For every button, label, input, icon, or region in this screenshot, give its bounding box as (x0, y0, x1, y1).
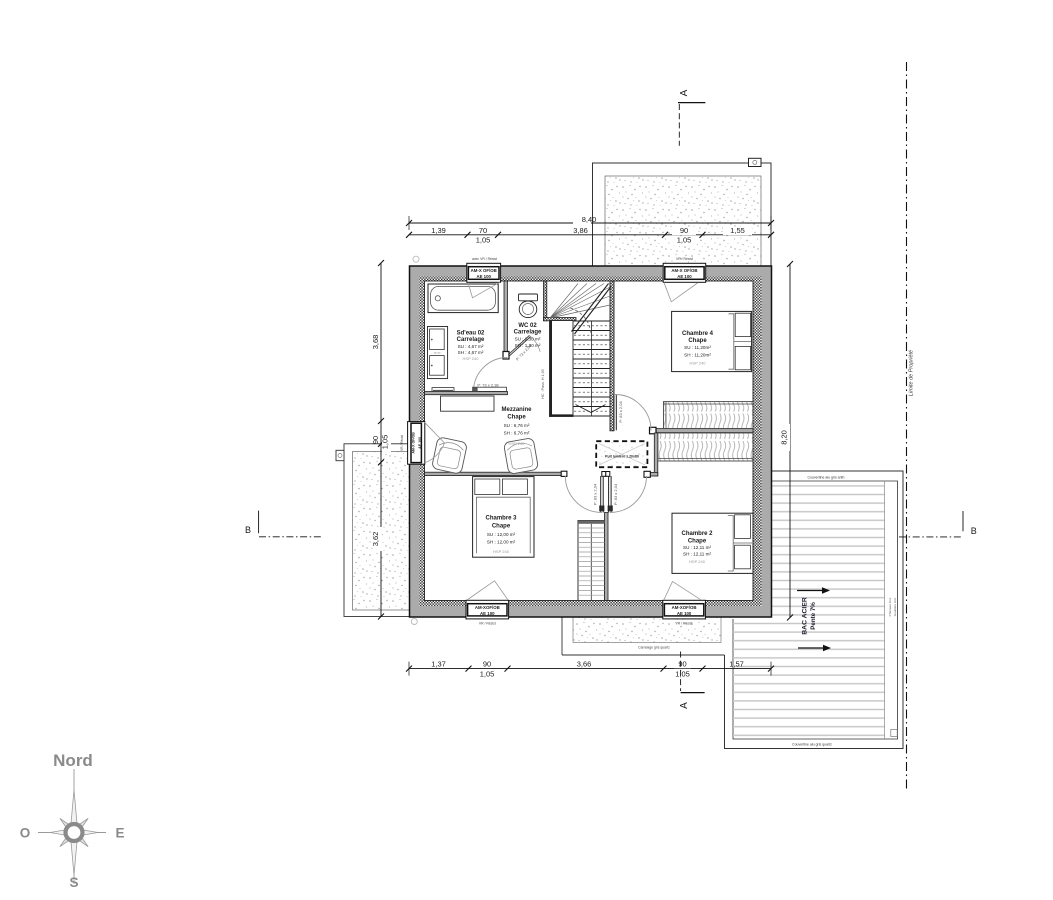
svg-text:avec VR / Résist: avec VR / Résist (472, 257, 497, 261)
svg-text:HSP 240: HSP 240 (689, 559, 706, 564)
svg-text:E: E (115, 826, 124, 841)
svg-text:SU : 12,00 m²: SU : 12,00 m² (487, 532, 516, 537)
svg-text:P: 83 x 2,04: P: 83 x 2,04 (618, 401, 623, 423)
svg-text:BAC ACIER: BAC ACIER (802, 597, 809, 635)
svg-text:HSP 240: HSP 240 (509, 441, 526, 446)
svg-text:SU : 11,20m²: SU : 11,20m² (684, 345, 711, 350)
svg-text:70: 70 (479, 226, 487, 235)
svg-text:B: B (971, 526, 977, 536)
svg-text:3,68: 3,68 (371, 335, 380, 350)
svg-text:AE 100: AE 100 (677, 611, 692, 616)
svg-text:Couvertine alu gris anth: Couvertine alu gris anth (808, 476, 845, 480)
svg-text:Carrelage: Carrelage (457, 337, 485, 343)
svg-text:SU : 6,76 m²: SU : 6,76 m² (504, 423, 530, 428)
svg-text:Chambre 3: Chambre 3 (485, 516, 517, 522)
svg-text:SH : 1,30 m²: SH : 1,30 m² (515, 343, 541, 348)
svg-text:Sd'eau 02: Sd'eau 02 (457, 331, 485, 337)
svg-text:SH : 12,00 m²: SH : 12,00 m² (487, 539, 516, 544)
svg-text:SU : 1,30 m²: SU : 1,30 m² (515, 336, 541, 341)
svg-text:Chape: Chape (507, 415, 526, 421)
svg-text:AM-X OF/OB: AM-X OF/OB (671, 268, 697, 273)
svg-text:AE 100: AE 100 (418, 437, 422, 449)
svg-text:SU : 4,67 m²: SU : 4,67 m² (458, 344, 484, 349)
svg-text:90: 90 (680, 226, 688, 235)
svg-text:P: 83 x 2,04: P: 83 x 2,04 (613, 483, 618, 505)
svg-text:O: O (20, 826, 31, 841)
svg-text:Couvertine alu gris quartz: Couvertine alu gris quartz (792, 743, 832, 747)
svg-text:Limite de Propriété: Limite de Propriété (909, 350, 915, 396)
svg-text:3,66: 3,66 (577, 659, 592, 668)
svg-text:AM-X OF/OB: AM-X OF/OB (471, 268, 497, 273)
svg-text:SH : 12,11 m²: SH : 12,11 m² (683, 551, 711, 556)
svg-text:1,55: 1,55 (730, 226, 745, 235)
svg-text:HSP 240: HSP 240 (493, 549, 510, 554)
svg-text:Mezzanine: Mezzanine (501, 407, 532, 413)
svg-text:1,37: 1,37 (431, 659, 446, 668)
svg-text:AM-X OF/OB: AM-X OF/OB (412, 432, 416, 454)
svg-text:1,05: 1,05 (380, 435, 389, 450)
svg-text:P: 83 x 2,04: P: 83 x 2,04 (593, 483, 598, 505)
svg-text:8,20: 8,20 (779, 430, 788, 445)
svg-text:A: A (679, 702, 690, 709)
svg-text:B: B (245, 525, 251, 535)
svg-text:3,62: 3,62 (371, 532, 380, 547)
svg-text:VR / Résist: VR / Résist (479, 622, 496, 626)
svg-text:VR / Résist: VR / Résist (676, 622, 693, 626)
svg-text:1,57: 1,57 (729, 659, 744, 668)
svg-text:HSP 240: HSP 240 (690, 361, 707, 366)
svg-text:AM-XOF/OB: AM-XOF/OB (475, 605, 500, 610)
svg-text:3,86: 3,86 (573, 226, 588, 235)
svg-text:VR / Résist: VR / Résist (676, 257, 693, 261)
svg-text:WC 02: WC 02 (518, 323, 537, 329)
svg-text:SH : 11,20m²: SH : 11,20m² (684, 352, 711, 357)
svg-text:Chape: Chape (688, 538, 707, 544)
svg-text:1,05: 1,05 (476, 236, 491, 245)
svg-text:HSP 240: HSP 240 (463, 356, 480, 361)
svg-text:AM-XOF/OB: AM-XOF/OB (672, 605, 697, 610)
svg-text:VR / Résist: VR / Résist (400, 435, 404, 451)
svg-text:Chambre 4: Chambre 4 (682, 331, 714, 337)
svg-text:AE 100: AE 100 (677, 274, 692, 279)
svg-text:SU : 12,11 m²: SU : 12,11 m² (683, 545, 711, 550)
svg-text:SH : 4,67 m²: SH : 4,67 m² (458, 350, 484, 355)
svg-text:1,05: 1,05 (480, 669, 495, 678)
svg-text:HC : Pass. H 1,90: HC : Pass. H 1,90 (541, 369, 545, 399)
svg-text:90: 90 (678, 659, 686, 668)
svg-text:Chape: Chape (688, 338, 707, 344)
svg-text:90: 90 (371, 436, 380, 444)
svg-text:Carrelage: Carrelage (514, 329, 542, 335)
svg-text:Nord: Nord (53, 751, 93, 770)
svg-text:Puit lumière 1.20x80: Puit lumière 1.20x80 (605, 454, 639, 458)
svg-text:A: A (679, 89, 690, 96)
svg-text:SH : 6,76 m²: SH : 6,76 m² (504, 431, 530, 436)
svg-text:1,05: 1,05 (675, 669, 690, 678)
svg-text:P: 73 x 2,38: P: 73 x 2,38 (477, 382, 499, 387)
svg-text:90: 90 (483, 659, 491, 668)
svg-text:AE 100: AE 100 (476, 274, 491, 279)
svg-text:Carrelage gris quartz: Carrelage gris quartz (638, 646, 670, 650)
svg-text:8,40: 8,40 (582, 215, 597, 224)
svg-text:Cheneau Zinc: Cheneau Zinc (888, 597, 892, 616)
svg-text:Gouttière zinc: Gouttière zinc (893, 597, 897, 616)
svg-text:Chambre 2: Chambre 2 (681, 531, 713, 537)
svg-text:1,05: 1,05 (677, 236, 692, 245)
svg-text:S: S (69, 875, 78, 890)
svg-text:Chape: Chape (492, 523, 511, 529)
svg-text:AE 100: AE 100 (480, 611, 495, 616)
svg-text:1,39: 1,39 (431, 226, 446, 235)
svg-text:Pente 7%: Pente 7% (810, 602, 817, 630)
svg-text:Meuble: Meuble (434, 353, 442, 355)
